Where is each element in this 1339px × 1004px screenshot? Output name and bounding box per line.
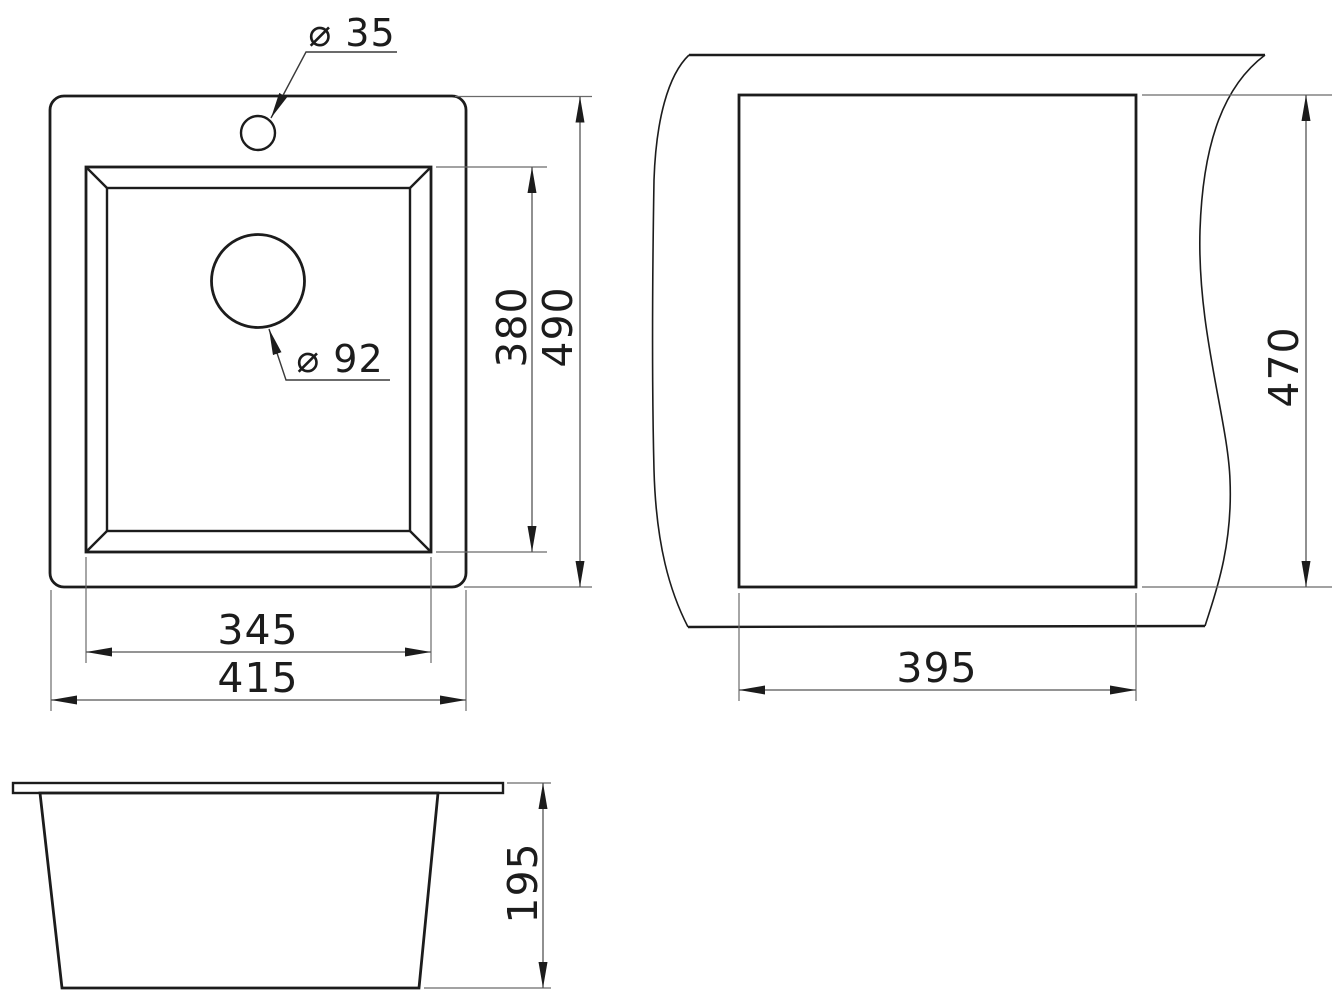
- bowl-length-label: 380: [488, 286, 536, 367]
- bowl-corner-bevel: [410, 531, 431, 552]
- overall-length-label: 490: [534, 286, 582, 367]
- bowl-width-label: 345: [217, 606, 298, 654]
- cutout-width-label: 395: [896, 644, 977, 692]
- bowl-corner-bevel: [86, 167, 107, 188]
- countertop-bottom-edge: [688, 626, 1205, 627]
- bowl-length-dimension: 380: [436, 167, 547, 552]
- faucet-hole-leader-line: [271, 52, 397, 118]
- overall-width-label: 415: [217, 654, 298, 702]
- drain-hole-dimension: ⌀ 92: [269, 329, 390, 381]
- sink-body-outline: [40, 793, 438, 988]
- sink-dimension-drawing: ⌀ 35 ⌀ 92 380 490 345: [0, 0, 1339, 1004]
- drain-hole-diameter-label: ⌀ 92: [296, 337, 383, 381]
- bowl-width-dimension: 345: [86, 557, 431, 663]
- side-view: 195: [13, 783, 551, 988]
- countertop-left-break-line: [653, 55, 690, 627]
- faucet-hole-dimension: ⌀ 35: [271, 11, 397, 118]
- bowl-corner-bevel: [410, 167, 431, 188]
- cutout-length-dimension: 470: [1142, 95, 1332, 587]
- countertop-right-break-line: [1200, 55, 1265, 626]
- sink-outer-outline: [50, 96, 466, 587]
- technical-drawing-canvas: ⌀ 35 ⌀ 92 380 490 345: [0, 0, 1339, 1004]
- cutout-length-label: 470: [1260, 326, 1308, 407]
- drain-hole: [212, 235, 305, 328]
- cutout-width-dimension: 395: [739, 593, 1136, 701]
- faucet-hole-diameter-label: ⌀ 35: [308, 11, 395, 55]
- bowl-corner-bevel: [86, 531, 107, 552]
- faucet-hole: [241, 116, 275, 150]
- top-view: ⌀ 35 ⌀ 92 380 490 345: [50, 11, 592, 711]
- sink-flange-outline: [13, 783, 503, 793]
- overall-height-dimension: 195: [424, 783, 551, 988]
- cutout-outline: [739, 95, 1136, 587]
- cutout-view: 470 395: [653, 55, 1333, 701]
- overall-height-label: 195: [499, 842, 547, 923]
